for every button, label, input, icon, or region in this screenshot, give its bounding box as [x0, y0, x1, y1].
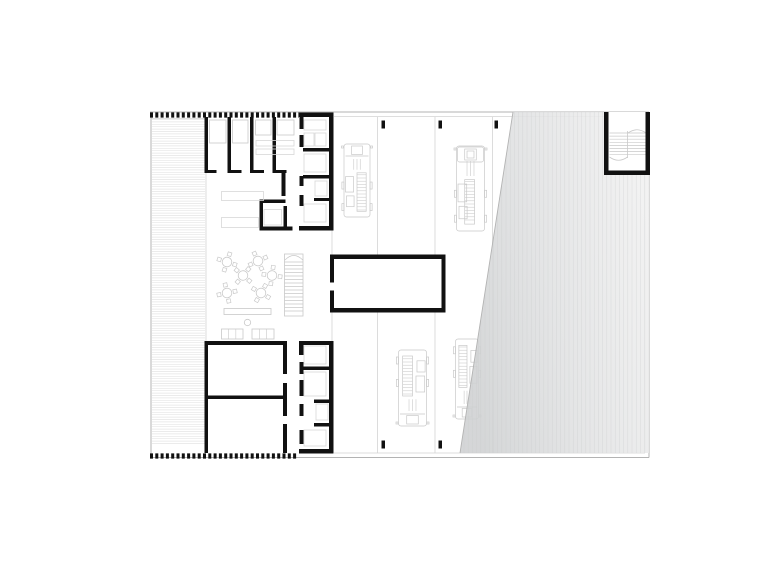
fire-truck-2: [454, 146, 487, 231]
chair: [263, 283, 268, 288]
truck-wheel: [342, 182, 344, 189]
truck-mirror: [396, 422, 398, 424]
bottom-block-top-wall: [299, 341, 334, 345]
truck-mirror: [454, 148, 456, 150]
chair: [226, 299, 231, 304]
truck-mirror: [342, 146, 344, 148]
corridor-wall: [282, 173, 286, 196]
door-stub: [273, 170, 287, 173]
wc-divider-wall: [303, 175, 329, 179]
fixture: [304, 346, 326, 364]
chair: [254, 298, 259, 303]
truck-wheel: [454, 215, 456, 222]
truck-wheel: [370, 204, 372, 211]
chair: [235, 279, 240, 284]
table-top: [267, 270, 278, 281]
door-stub: [250, 170, 264, 173]
corridor-wall: [300, 135, 304, 147]
wardrobe: [256, 120, 272, 135]
table-top: [221, 256, 233, 268]
fixture: [304, 154, 326, 172]
gate-post: [382, 441, 386, 449]
truck-body: [457, 146, 485, 231]
chair: [246, 267, 251, 272]
top-block-bottom-wall: [299, 226, 334, 231]
door-stub: [205, 170, 217, 173]
round-table: [214, 249, 239, 274]
corridor-wall: [300, 345, 304, 355]
plan-layers: [150, 112, 650, 458]
workshop-wall: [330, 308, 446, 313]
truck-mirror: [485, 148, 487, 150]
sofa: [252, 329, 274, 339]
fixture: [304, 430, 326, 446]
bed: [233, 120, 249, 143]
fixture: [315, 181, 327, 196]
courtyard-stair-treads: [285, 262, 304, 311]
fixture: [304, 372, 326, 396]
truck-wheel: [485, 190, 487, 197]
truck-wheel: [485, 215, 487, 222]
truck-wheel: [453, 347, 455, 354]
truck-wheel: [453, 370, 455, 377]
chair: [259, 266, 264, 271]
fixture: [315, 133, 326, 146]
wc-divider-wall: [303, 148, 329, 152]
corridor-wall: [300, 362, 304, 374]
corridor-wall: [300, 404, 304, 416]
chair: [227, 252, 232, 257]
chair: [234, 268, 239, 273]
corridor-wall: [300, 380, 304, 396]
counter-table: [224, 309, 271, 315]
workshop-wall: [330, 255, 446, 260]
workshop-floor: [330, 255, 446, 313]
chair: [278, 274, 282, 278]
gate-post: [495, 121, 499, 129]
top-block-right-wall: [329, 113, 334, 231]
dorm-divider-wall: [228, 117, 232, 170]
truck-mirror: [371, 146, 373, 148]
terrace-decking: [152, 120, 205, 444]
workshop-wall: [442, 255, 446, 313]
stairwell-wall: [646, 112, 651, 175]
locker-row: [222, 218, 259, 228]
top-block-left-wall: [205, 117, 209, 173]
chair: [263, 255, 268, 260]
workshop-wall: [330, 255, 334, 283]
small-room-wall: [284, 206, 288, 231]
table-top: [252, 255, 265, 268]
bed: [210, 120, 227, 143]
chair: [217, 292, 222, 297]
truck-wheel: [342, 204, 344, 211]
courtyard-stair-curve: [285, 256, 303, 261]
truck-wheel: [396, 357, 398, 364]
bottom-block-top-wall: [205, 341, 286, 345]
chair: [222, 267, 227, 272]
stairwell-wall: [604, 171, 650, 176]
truck-mirror: [427, 422, 429, 424]
floor-plan-page: [0, 0, 780, 584]
truck-wheel: [454, 190, 456, 197]
chair: [233, 289, 238, 294]
fire-truck-3: [396, 350, 429, 426]
truck-wheel: [427, 357, 429, 364]
dorm-divider-wall: [273, 117, 277, 170]
corridor-wall: [300, 117, 304, 129]
chair: [266, 295, 271, 300]
stairwell-wall: [604, 112, 609, 175]
truck-mirror: [453, 415, 455, 417]
top-block-top-wall: [299, 113, 334, 118]
stool: [244, 319, 250, 325]
chair: [248, 262, 253, 267]
gate-post: [382, 121, 386, 129]
small-room-wall: [260, 227, 293, 231]
floor-plan-canvas: [0, 0, 780, 584]
bottom-block-divider: [205, 396, 284, 400]
bottom-block-center-wall: [283, 341, 287, 374]
small-room-wall: [260, 200, 264, 231]
gate-post: [439, 121, 443, 129]
chair: [247, 278, 252, 283]
sofa: [222, 329, 244, 339]
truck-wheel: [370, 182, 372, 189]
fixture: [316, 404, 328, 420]
corridor-wall: [300, 195, 304, 206]
fixture: [304, 120, 326, 130]
wc-divider-wall: [303, 367, 329, 371]
table-top: [221, 287, 232, 298]
locker-row: [222, 192, 264, 201]
round-table: [247, 279, 275, 307]
wc-divider-wall: [314, 198, 329, 201]
corridor-wall: [300, 176, 304, 186]
bottom-block-center-wall: [283, 383, 287, 416]
door-stub: [228, 170, 242, 173]
wc-divider-wall: [314, 423, 330, 427]
wc-divider-wall: [314, 400, 330, 404]
chair: [252, 251, 257, 256]
gate-post: [439, 441, 443, 449]
chair: [217, 257, 222, 262]
sofa-body: [222, 329, 244, 339]
round-table: [215, 281, 239, 305]
workshop-wall: [330, 291, 334, 313]
round-table: [245, 248, 272, 275]
chair: [251, 286, 256, 291]
courtyard-stair: [285, 254, 304, 316]
truck-wheel: [427, 379, 429, 386]
dorm-divider-wall: [250, 117, 254, 170]
chair: [232, 262, 237, 267]
corridor-wall: [300, 430, 304, 444]
fixture: [304, 204, 326, 222]
bottom-block-center-wall: [283, 424, 287, 453]
table-top: [236, 269, 250, 283]
wardrobe: [277, 120, 294, 135]
stairwell-floor: [604, 112, 650, 175]
fixture: [304, 133, 314, 146]
bottom-block-bottom-wall: [299, 449, 334, 454]
truck-wheel: [396, 379, 398, 386]
bottom-block-right-wall: [329, 341, 334, 454]
chair: [269, 281, 273, 285]
chair: [262, 272, 266, 276]
sofa-body: [252, 329, 274, 339]
chair: [271, 265, 275, 269]
small-room-fixture: [264, 210, 282, 226]
chair: [223, 283, 228, 288]
fire-truck-1: [342, 144, 373, 217]
